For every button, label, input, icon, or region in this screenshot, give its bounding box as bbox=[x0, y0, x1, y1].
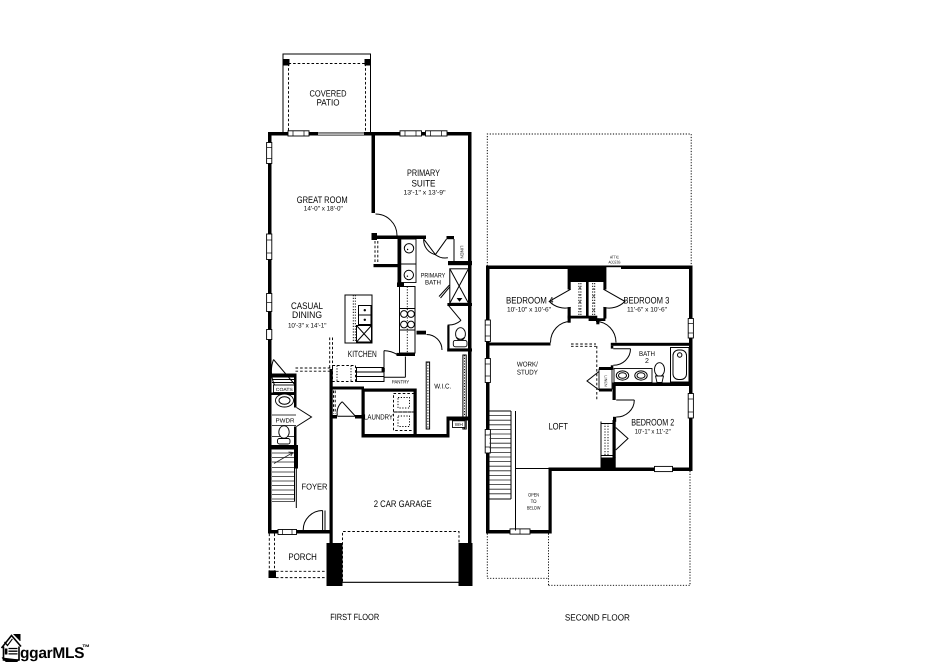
svg-text:W.I.C.: W.I.C. bbox=[434, 384, 451, 391]
svg-text:13'-1" x 13'-9": 13'-1" x 13'-9" bbox=[404, 190, 447, 197]
svg-text:WORK/: WORK/ bbox=[517, 361, 538, 369]
svg-text:BEDROOM 2: BEDROOM 2 bbox=[631, 418, 674, 429]
svg-text:BELOW: BELOW bbox=[527, 506, 541, 512]
svg-text:PATIO: PATIO bbox=[317, 98, 340, 108]
svg-text:PORCH: PORCH bbox=[288, 552, 317, 563]
svg-text:BATH: BATH bbox=[639, 351, 655, 358]
svg-text:COATS: COATS bbox=[276, 387, 293, 392]
svg-text:FIRST FLOOR: FIRST FLOOR bbox=[330, 612, 379, 622]
svg-text:BEDROOM 3: BEDROOM 3 bbox=[623, 296, 669, 307]
svg-text:10'-10" x 10'-6": 10'-10" x 10'-6" bbox=[507, 307, 552, 314]
svg-text:SECOND FLOOR: SECOND FLOOR bbox=[565, 613, 630, 623]
svg-text:TO: TO bbox=[531, 499, 537, 505]
svg-text:PRIMARY: PRIMARY bbox=[407, 168, 440, 179]
svg-text:ggarMLS: ggarMLS bbox=[20, 645, 84, 662]
svg-text:BATH: BATH bbox=[425, 280, 441, 287]
svg-text:BEDROOM 4: BEDROOM 4 bbox=[506, 296, 554, 307]
svg-text:DINING: DINING bbox=[292, 310, 322, 321]
svg-text:LAUNDRY: LAUNDRY bbox=[364, 413, 393, 422]
svg-text:10'-1" x 11'-2": 10'-1" x 11'-2" bbox=[635, 429, 672, 436]
svg-text:PANTRY: PANTRY bbox=[392, 380, 410, 386]
svg-text:LINEN: LINEN bbox=[460, 246, 465, 259]
svg-text:LINEN: LINEN bbox=[604, 375, 608, 386]
svg-text:ACCESS: ACCESS bbox=[609, 259, 621, 264]
svg-text:2 CAR GARAGE: 2 CAR GARAGE bbox=[374, 499, 432, 510]
svg-text:SUITE: SUITE bbox=[412, 179, 436, 190]
svg-text:PWDR: PWDR bbox=[276, 418, 296, 425]
svg-text:GREAT ROOM: GREAT ROOM bbox=[297, 195, 348, 206]
svg-text:KITCHEN: KITCHEN bbox=[348, 349, 377, 359]
svg-text:PRIMARY: PRIMARY bbox=[421, 273, 446, 280]
svg-text:11'-6" x 10'-6": 11'-6" x 10'-6" bbox=[627, 307, 668, 314]
svg-text:2: 2 bbox=[645, 358, 649, 365]
svg-text:OPEN: OPEN bbox=[528, 493, 539, 499]
svg-text:LOFT: LOFT bbox=[548, 422, 568, 433]
svg-text:WH: WH bbox=[455, 422, 463, 427]
svg-text:14'-0" x 18'-0": 14'-0" x 18'-0" bbox=[304, 206, 344, 213]
svg-text:FOYER: FOYER bbox=[302, 482, 328, 492]
svg-text:10'-3" x 14'-1": 10'-3" x 14'-1" bbox=[288, 323, 327, 330]
svg-text:STUDY: STUDY bbox=[517, 370, 538, 377]
svg-text:™: ™ bbox=[82, 643, 90, 652]
